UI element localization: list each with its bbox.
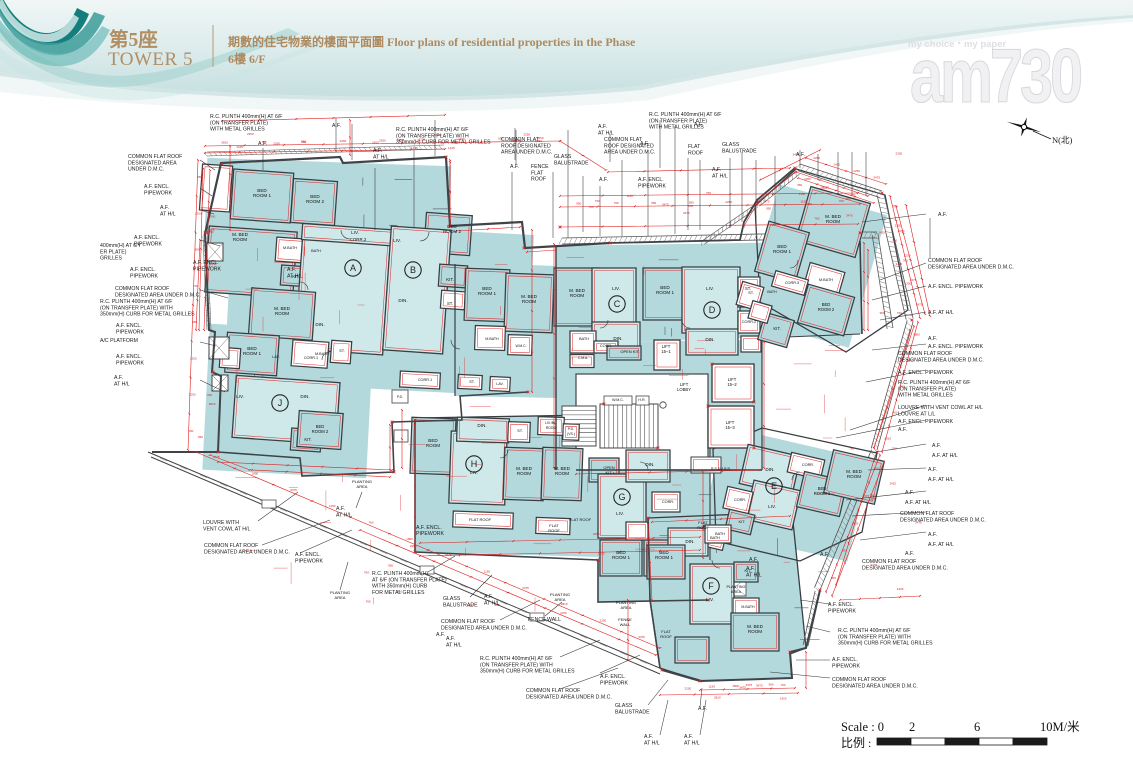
svg-text:15–1: 15–1: [661, 349, 671, 354]
svg-text:3475: 3475: [756, 684, 763, 688]
svg-text:ROOM: ROOM: [570, 293, 584, 298]
svg-text:COMMON FLAT ROOF: COMMON FLAT ROOF: [204, 543, 258, 549]
svg-text:AT H/L: AT H/L: [373, 154, 389, 160]
svg-text:3475: 3475: [846, 214, 853, 218]
svg-text:DESIGNATED AREA UNDER D.M.C.: DESIGNATED AREA UNDER D.M.C.: [862, 565, 948, 571]
svg-text:(ON TRANSFER PLATE) WITH: (ON TRANSFER PLATE) WITH: [100, 305, 173, 311]
svg-text:BALUSTRADE: BALUSTRADE: [615, 709, 650, 715]
svg-text:350mm(H) CURB FOR METAL GRILLE: 350mm(H) CURB FOR METAL GRILLES: [100, 312, 195, 318]
svg-text:A.F. AT H/L: A.F. AT H/L: [932, 453, 958, 459]
svg-text:A.F.: A.F.: [796, 152, 805, 158]
svg-text:2250: 2250: [189, 393, 196, 397]
svg-text:A.F. ENCL. PIPEWORK: A.F. ENCL. PIPEWORK: [898, 370, 954, 376]
svg-text:A.F. ENCL.: A.F. ENCL.: [130, 267, 156, 273]
svg-text:950: 950: [197, 175, 202, 179]
svg-text:3475: 3475: [213, 455, 220, 459]
svg-text:LIV.: LIV.: [236, 394, 244, 399]
svg-text:BALUSTRADE: BALUSTRADE: [722, 148, 757, 154]
svg-text:3475: 3475: [873, 176, 880, 180]
svg-text:A.F.: A.F.: [928, 336, 937, 342]
svg-text:A.F.: A.F.: [932, 443, 941, 449]
svg-text:DESIGNATED AREA UNDER D.M.C.: DESIGNATED AREA UNDER D.M.C.: [900, 517, 986, 523]
svg-text:2250: 2250: [813, 156, 820, 160]
svg-text:LIV.: LIV.: [612, 286, 620, 291]
svg-text:ROOM 1: ROOM 1: [253, 193, 272, 198]
svg-text:760: 760: [589, 205, 594, 209]
svg-text:3475: 3475: [745, 683, 752, 687]
svg-text:A.F. ENCL. PIPEWORK: A.F. ENCL. PIPEWORK: [928, 284, 984, 290]
svg-text:AT H/L: AT H/L: [160, 211, 176, 217]
svg-text:WALL: WALL: [620, 622, 632, 627]
svg-text:A.F. ENCL.: A.F. ENCL.: [295, 552, 321, 558]
svg-text:950: 950: [301, 140, 306, 144]
svg-text:W.M.C.: W.M.C.: [612, 398, 624, 402]
svg-text:2250: 2250: [190, 357, 197, 361]
svg-text:DESIGNATED AREA UNDER D.M.C.: DESIGNATED AREA UNDER D.M.C.: [832, 683, 918, 689]
svg-text:400mm(H) AT 6/Y: 400mm(H) AT 6/Y: [100, 243, 142, 249]
svg-text:R.C. PLINTH 400mm(H): R.C. PLINTH 400mm(H): [372, 571, 428, 577]
svg-text:ER PLATE): ER PLATE): [100, 249, 127, 255]
svg-text:ROOM 1: ROOM 1: [773, 249, 792, 254]
svg-text:A.F. ENCL.: A.F. ENCL.: [134, 235, 160, 241]
svg-text:2250: 2250: [523, 133, 530, 137]
svg-text:6: 6: [974, 720, 980, 734]
svg-text:AREA: AREA: [621, 605, 632, 610]
svg-text:H.R.: H.R.: [638, 398, 645, 402]
svg-text:1800: 1800: [913, 333, 920, 337]
svg-text:3475: 3475: [869, 497, 876, 501]
svg-text:3475: 3475: [763, 200, 770, 204]
svg-text:M.BATH: M.BATH: [741, 605, 755, 609]
svg-text:A.F.: A.F.: [644, 734, 653, 740]
svg-text:A.F. AT H/L: A.F. AT H/L: [905, 500, 931, 506]
svg-text:BATH: BATH: [710, 536, 720, 540]
svg-text:950: 950: [769, 682, 774, 686]
svg-text:A.F.: A.F.: [446, 636, 455, 642]
svg-text:A.F.: A.F.: [928, 532, 937, 538]
svg-text:950: 950: [797, 183, 802, 187]
svg-text:R.C. PLINTH 400mm(H) AT 6/F: R.C. PLINTH 400mm(H) AT 6/F: [210, 114, 282, 120]
svg-text:KIT.: KIT.: [304, 437, 311, 442]
svg-text:COMMON FLAT ROOF: COMMON FLAT ROOF: [928, 258, 982, 264]
svg-text:PIPEWORK: PIPEWORK: [144, 190, 172, 196]
svg-text:950: 950: [207, 393, 212, 397]
svg-text:950: 950: [807, 202, 812, 206]
svg-text:DIN.: DIN.: [645, 462, 654, 467]
svg-text:950: 950: [831, 576, 836, 580]
svg-text:ROOM 1: ROOM 1: [656, 290, 675, 295]
svg-text:COMMON FLAT ROOF: COMMON FLAT ROOF: [862, 559, 916, 565]
svg-text:期數的住宅物業的樓面平面圖 Floor plans of r: 期數的住宅物業的樓面平面圖 Floor plans of residential…: [228, 34, 636, 49]
svg-text:C: C: [614, 299, 621, 309]
svg-text:DIN.: DIN.: [398, 298, 407, 303]
svg-text:H: H: [471, 459, 478, 469]
svg-text:2250: 2250: [340, 139, 347, 143]
svg-text:CORR.3: CORR.3: [785, 281, 799, 285]
svg-text:LAV.: LAV.: [496, 382, 503, 386]
svg-text:A.F. ENCL.: A.F. ENCL.: [828, 602, 854, 608]
svg-text:(ON TRANSFER PLATE) WITH: (ON TRANSFER PLATE) WITH: [480, 662, 553, 668]
svg-text:CORR.: CORR.: [734, 498, 746, 502]
svg-text:ROOF: ROOF: [531, 177, 546, 183]
svg-text:FLAT: FLAT: [531, 170, 544, 176]
svg-text:GRILLES: GRILLES: [100, 256, 122, 262]
svg-text:M.BATH: M.BATH: [485, 337, 499, 341]
svg-text:FLAT ROOF: FLAT ROOF: [569, 517, 592, 522]
svg-text:BALUSTRADE: BALUSTRADE: [554, 160, 589, 166]
svg-text:3475: 3475: [683, 211, 690, 215]
svg-text:CORR.1: CORR.1: [304, 356, 318, 360]
svg-text:DIN.: DIN.: [765, 467, 774, 472]
svg-text:COMMON FLAT ROOF: COMMON FLAT ROOF: [526, 688, 580, 694]
svg-text:DESIGNATED AREA UNDER D.M.C.: DESIGNATED AREA UNDER D.M.C.: [441, 625, 527, 631]
svg-text:A.F. AT H/L: A.F. AT H/L: [928, 310, 954, 316]
svg-text:W.M.C.: W.M.C.: [515, 344, 526, 348]
svg-text:950: 950: [198, 435, 203, 439]
svg-text:950: 950: [892, 411, 897, 415]
svg-text:LIV.: LIV.: [706, 286, 714, 291]
svg-text:LOBBY: LOBBY: [677, 387, 691, 392]
svg-text:CORR.: CORR.: [662, 500, 674, 504]
svg-text:ST.: ST.: [517, 428, 523, 433]
svg-text:760: 760: [366, 600, 371, 604]
svg-text:A.F. ENCL.: A.F. ENCL.: [638, 177, 664, 183]
svg-text:LIV.: LIV.: [393, 238, 401, 243]
svg-text:ROOF: ROOF: [688, 150, 703, 156]
svg-text:2250: 2250: [685, 687, 692, 691]
svg-text:ROOM: ROOM: [233, 237, 247, 242]
svg-text:A.F.: A.F.: [287, 267, 296, 273]
svg-text:A.F.: A.F.: [258, 141, 267, 147]
svg-text:2810: 2810: [379, 138, 386, 142]
svg-text:LAV.: LAV.: [272, 355, 280, 359]
svg-text:AREA: AREA: [555, 597, 566, 602]
svg-text:2250: 2250: [904, 254, 911, 258]
svg-text:PIPEWORK: PIPEWORK: [116, 329, 144, 335]
svg-text:A.F.: A.F.: [938, 212, 947, 218]
svg-text:KIT.: KIT.: [446, 277, 454, 282]
svg-text:AT H/L: AT H/L: [712, 173, 728, 179]
svg-text:LOUVRE WITH: LOUVRE WITH: [203, 520, 239, 526]
svg-text:3475: 3475: [662, 203, 669, 207]
svg-text:1150: 1150: [204, 230, 211, 234]
svg-text:3475: 3475: [290, 488, 297, 492]
svg-text:A.F.: A.F.: [336, 506, 345, 512]
svg-text:ROOM: ROOM: [748, 629, 762, 634]
svg-text:FOR METAL GRILLES: FOR METAL GRILLES: [372, 590, 425, 596]
svg-text:WITH METAL GRILLES: WITH METAL GRILLES: [210, 127, 265, 133]
svg-text:AT H/L: AT H/L: [287, 273, 303, 279]
svg-text:AREA UNDER D.M.C.: AREA UNDER D.M.C.: [501, 150, 552, 156]
svg-text:A.F. AT H/L: A.F. AT H/L: [928, 477, 954, 483]
svg-text:ROOM 1: ROOM 1: [655, 555, 674, 560]
svg-text:950: 950: [188, 429, 193, 433]
svg-text:A.F.: A.F.: [820, 552, 829, 558]
svg-text:KIT.: KIT.: [606, 470, 613, 475]
svg-text:A.F.: A.F.: [436, 632, 445, 638]
svg-text:A.F.: A.F.: [749, 557, 758, 563]
svg-text:760: 760: [614, 201, 619, 205]
svg-text:LIV.: LIV.: [768, 504, 776, 509]
svg-text:15–3: 15–3: [725, 425, 735, 430]
svg-text:AREA: AREA: [335, 595, 346, 600]
svg-text:A.F.: A.F.: [373, 148, 382, 154]
svg-text:1150: 1150: [329, 504, 336, 508]
svg-text:760: 760: [595, 199, 600, 203]
svg-text:A.F. AT H/L: A.F. AT H/L: [928, 542, 954, 548]
svg-text:FLAT ROOF: FLAT ROOF: [469, 517, 492, 522]
svg-text:COMMON FLAT ROOF: COMMON FLAT ROOF: [900, 511, 954, 517]
svg-text:ROOM: ROOM: [275, 311, 289, 316]
svg-text:950: 950: [688, 204, 693, 208]
svg-text:N(北): N(北): [1052, 135, 1072, 145]
svg-text:R.C. PLINTH 400mm(H) AT 6/F: R.C. PLINTH 400mm(H) AT 6/F: [480, 656, 552, 662]
svg-text:TOWER 5: TOWER 5: [108, 49, 193, 70]
svg-text:A.F.: A.F.: [160, 205, 169, 211]
svg-text:ROOF: ROOF: [697, 525, 709, 530]
svg-text:UNDER D.M.C.: UNDER D.M.C.: [128, 167, 164, 173]
svg-text:950: 950: [195, 248, 200, 252]
svg-text:A.F. ENCL.: A.F. ENCL.: [832, 657, 858, 663]
svg-text:2250: 2250: [898, 229, 905, 233]
svg-text:DIN.: DIN.: [477, 423, 486, 428]
svg-text:2250: 2250: [895, 224, 902, 228]
svg-text:2250: 2250: [410, 544, 417, 548]
svg-text:1150: 1150: [626, 194, 633, 198]
svg-text:PIPEWORK: PIPEWORK: [193, 266, 221, 272]
svg-text:A.F.: A.F.: [898, 427, 907, 433]
svg-text:PIPEWORK: PIPEWORK: [828, 608, 856, 614]
svg-text:GLASS: GLASS: [722, 142, 740, 148]
svg-text:760: 760: [706, 191, 711, 195]
svg-text:PIPEWORK: PIPEWORK: [116, 360, 144, 366]
svg-text:PIPEWORK: PIPEWORK: [832, 663, 860, 669]
svg-text:2250: 2250: [247, 132, 254, 136]
svg-text:CORR.2: CORR.2: [350, 237, 367, 242]
svg-text:Scale : 0: Scale : 0: [841, 720, 884, 734]
svg-text:KIT.: KIT.: [739, 519, 746, 524]
svg-text:PIPEWORK: PIPEWORK: [416, 531, 444, 537]
svg-text:950: 950: [388, 564, 393, 568]
svg-text:A/C PLATFORM: A/C PLATFORM: [100, 338, 138, 344]
svg-text:BATH: BATH: [579, 337, 589, 341]
svg-text:CORR.: CORR.: [600, 344, 612, 348]
svg-text:1425: 1425: [411, 146, 418, 150]
svg-text:A.F.: A.F.: [510, 164, 519, 170]
svg-text:PIPEWORK: PIPEWORK: [638, 183, 666, 189]
svg-text:DESIGNATED AREA UNDER D.M.C.: DESIGNATED AREA UNDER D.M.C.: [526, 694, 612, 700]
svg-text:CORR.: CORR.: [802, 463, 814, 467]
svg-text:E: E: [771, 481, 777, 491]
svg-text:ROOM 2: ROOM 2: [818, 307, 835, 312]
svg-text:760: 760: [897, 311, 902, 315]
svg-text:DESIGNATED AREA UNDER D.M.C.: DESIGNATED AREA UNDER D.M.C.: [898, 357, 984, 363]
svg-text:2250: 2250: [823, 185, 830, 189]
svg-text:AREA UNDER D.M.C.: AREA UNDER D.M.C.: [604, 150, 655, 156]
svg-text:760: 760: [364, 571, 369, 575]
svg-text:2810: 2810: [884, 437, 891, 441]
svg-text:COMMON FLAT ROOF: COMMON FLAT ROOF: [441, 619, 495, 625]
svg-text:ROOF: ROOF: [548, 528, 560, 533]
svg-text:DESIGNATED AREA UNDER D.M.C.: DESIGNATED AREA UNDER D.M.C.: [928, 264, 1014, 270]
svg-text:OPEN KIT.: OPEN KIT.: [620, 349, 639, 354]
svg-text:950: 950: [210, 214, 215, 218]
svg-text:COMMON FLAT ROOF: COMMON FLAT ROOF: [128, 154, 182, 160]
svg-text:LIV.: LIV.: [351, 230, 359, 235]
svg-text:BATH: BATH: [767, 290, 777, 294]
svg-text:ROOM: ROOM: [847, 474, 861, 479]
svg-text:PIPEWORK: PIPEWORK: [600, 680, 628, 686]
svg-text:1150: 1150: [709, 685, 716, 689]
svg-text:VENT COWL AT H/L: VENT COWL AT H/L: [203, 526, 250, 532]
svg-text:DIN.: DIN.: [705, 337, 714, 342]
svg-text:3475: 3475: [916, 302, 923, 306]
svg-text:(ON TRANSFER PLATE) WITH: (ON TRANSFER PLATE) WITH: [396, 133, 469, 139]
svg-text:1425: 1425: [780, 697, 787, 701]
svg-text:BATH: BATH: [715, 532, 725, 536]
svg-text:R.C. PLINTH 400mm(H) AT 6/F: R.C. PLINTH 400mm(H) AT 6/F: [100, 299, 172, 305]
svg-text:A.F.: A.F.: [684, 734, 693, 740]
svg-text:AT H/L: AT H/L: [114, 381, 130, 387]
svg-text:A.F.: A.F.: [712, 167, 721, 173]
svg-text:(ON TRANSFER PLATE): (ON TRANSFER PLATE): [898, 386, 956, 392]
svg-text:A.F. ENCL.: A.F. ENCL.: [116, 323, 142, 329]
svg-text:WITH METAL GRILLES: WITH METAL GRILLES: [898, 393, 953, 399]
svg-text:M.BATH: M.BATH: [819, 278, 833, 282]
svg-text:COMMON FLAT: COMMON FLAT: [501, 137, 540, 143]
svg-text:ROOF: ROOF: [660, 634, 672, 639]
svg-text:2810: 2810: [598, 552, 605, 556]
svg-text:1425: 1425: [833, 163, 840, 167]
svg-text:R.C. PLINTH 400mm(H) AT 6/F: R.C. PLINTH 400mm(H) AT 6/F: [838, 628, 910, 634]
svg-text:ROOM 2: ROOM 2: [443, 229, 462, 234]
svg-text:G: G: [618, 492, 625, 502]
svg-text:760: 760: [892, 239, 897, 243]
svg-text:ROOM: ROOM: [826, 219, 840, 224]
svg-text:COMMON FLAT ROOF: COMMON FLAT ROOF: [898, 351, 952, 357]
svg-text:COMMON FLAT: COMMON FLAT: [604, 137, 643, 143]
svg-text:KIT.: KIT.: [773, 326, 780, 331]
svg-text:ROOM: ROOM: [426, 443, 440, 448]
svg-text:R.C. PLINTH 400mm(H) AT 6/F: R.C. PLINTH 400mm(H) AT 6/F: [396, 127, 468, 133]
svg-text:A.F.: A.F.: [114, 375, 123, 381]
svg-text:COMMON FLAT ROOF: COMMON FLAT ROOF: [832, 677, 886, 683]
svg-text:2250: 2250: [600, 619, 607, 623]
svg-text:DESIGNATED AREA UNDER D.M.C.: DESIGNATED AREA UNDER D.M.C.: [204, 549, 290, 555]
svg-text:15–2: 15–2: [727, 382, 737, 387]
svg-text:R.S.&M.R.R.: R.S.&M.R.R.: [711, 467, 731, 471]
svg-text:DIN.: DIN.: [300, 394, 309, 399]
svg-text:A.F.: A.F.: [698, 706, 707, 712]
svg-text:FENCE WALL: FENCE WALL: [528, 617, 561, 623]
svg-text:(ON TRANSFER PLATE): (ON TRANSFER PLATE): [210, 120, 268, 126]
svg-text:2810: 2810: [221, 141, 228, 145]
svg-text:2250: 2250: [804, 177, 811, 181]
svg-text:ROOM 2: ROOM 2: [306, 199, 325, 204]
svg-text:COMMON FLAT ROOF: COMMON FLAT ROOF: [115, 286, 169, 292]
svg-text:D: D: [709, 305, 716, 315]
svg-text:ST.: ST.: [748, 290, 754, 295]
svg-text:2250: 2250: [725, 200, 732, 204]
svg-text:(ON TRANSFER PLATE) WITH: (ON TRANSFER PLATE) WITH: [838, 634, 911, 640]
svg-text:3475: 3475: [638, 635, 645, 639]
svg-text:3475: 3475: [896, 262, 903, 266]
svg-text:DESIGNATED AREA UNDER D.M.C.: DESIGNATED AREA UNDER D.M.C.: [115, 292, 201, 298]
svg-text:1150: 1150: [799, 192, 806, 196]
svg-text:950: 950: [192, 320, 197, 324]
svg-text:(VS.): (VS.): [567, 432, 575, 436]
svg-text:2250: 2250: [593, 532, 600, 536]
svg-text:950: 950: [880, 311, 885, 315]
svg-text:ROOM 1: ROOM 1: [243, 351, 262, 356]
svg-text:ROOF DESIGNATED: ROOF DESIGNATED: [604, 143, 654, 149]
svg-text:ROOM 1: ROOM 1: [478, 291, 497, 296]
svg-text:A: A: [350, 263, 356, 273]
svg-text:AT H/L: AT H/L: [644, 740, 660, 746]
svg-text:10M/米: 10M/米: [1040, 720, 1080, 734]
svg-text:1425: 1425: [878, 231, 885, 235]
svg-text:1150: 1150: [484, 570, 491, 574]
svg-text:DIN.: DIN.: [315, 322, 324, 327]
svg-text:R.C. PLINTH 400mm(H) AT 6/F: R.C. PLINTH 400mm(H) AT 6/F: [898, 380, 970, 386]
svg-text:PIPEWORK: PIPEWORK: [295, 558, 323, 564]
svg-text:ROOM 2: ROOM 2: [312, 429, 329, 434]
svg-text:AT H/L: AT H/L: [484, 600, 500, 606]
svg-text:350mm(H) CURB FOR METAL GRILLE: 350mm(H) CURB FOR METAL GRILLES: [838, 641, 933, 647]
svg-text:WITH 350mm(H) CURB: WITH 350mm(H) CURB: [372, 584, 428, 590]
svg-text:AT H/L: AT H/L: [446, 642, 462, 648]
svg-text:2810: 2810: [714, 695, 721, 699]
svg-text:950: 950: [576, 202, 581, 206]
svg-text:ST.: ST.: [447, 301, 453, 306]
svg-text:GLASS: GLASS: [554, 154, 572, 160]
svg-text:AT H/L: AT H/L: [336, 512, 352, 518]
svg-text:6樓 6/F: 6樓 6/F: [228, 51, 266, 66]
svg-text:AREA: AREA: [357, 484, 368, 489]
svg-text:2810: 2810: [372, 140, 379, 144]
svg-text:PLANTING: PLANTING: [727, 585, 746, 589]
svg-text:J: J: [278, 398, 283, 408]
svg-text:760: 760: [849, 447, 854, 451]
svg-text:ROOM: ROOM: [517, 471, 531, 476]
svg-text:760: 760: [368, 521, 373, 525]
svg-text:ROOM: ROOM: [522, 299, 536, 304]
svg-text:AT H/L: AT H/L: [598, 130, 614, 136]
svg-text:B: B: [410, 265, 416, 275]
svg-text:DIN.: DIN.: [685, 539, 694, 544]
svg-text:AT 6/F (ON TRANSFER PLATE): AT 6/F (ON TRANSFER PLATE): [372, 577, 447, 583]
svg-text:A.F. ENCL.: A.F. ENCL.: [144, 184, 170, 190]
svg-text:A.F.: A.F.: [905, 551, 914, 557]
svg-text:LIV.: LIV.: [616, 511, 624, 516]
svg-text:R.C. PLINTH 400mm(H) AT 6/F: R.C. PLINTH 400mm(H) AT 6/F: [649, 112, 721, 118]
svg-text:1425: 1425: [236, 145, 243, 149]
svg-text:AT H/L: AT H/L: [746, 572, 762, 578]
svg-text:A.F.: A.F.: [484, 594, 493, 600]
svg-text:A.F.: A.F.: [928, 467, 937, 473]
svg-text:760: 760: [839, 199, 844, 203]
svg-text:A.F.: A.F.: [599, 177, 608, 183]
svg-text:2: 2: [909, 720, 915, 734]
svg-text:M.BATH: M.BATH: [283, 246, 297, 250]
svg-text:A.F. ENCL.: A.F. ENCL.: [116, 354, 142, 360]
svg-text:LIV./EL.: LIV./EL.: [545, 421, 557, 425]
svg-text:A.F. ENCL.: A.F. ENCL.: [600, 674, 626, 680]
svg-text:第5座: 第5座: [109, 28, 158, 51]
svg-text:2810: 2810: [561, 602, 568, 606]
svg-text:760: 760: [814, 217, 819, 221]
svg-text:ROOM: ROOM: [555, 471, 569, 476]
